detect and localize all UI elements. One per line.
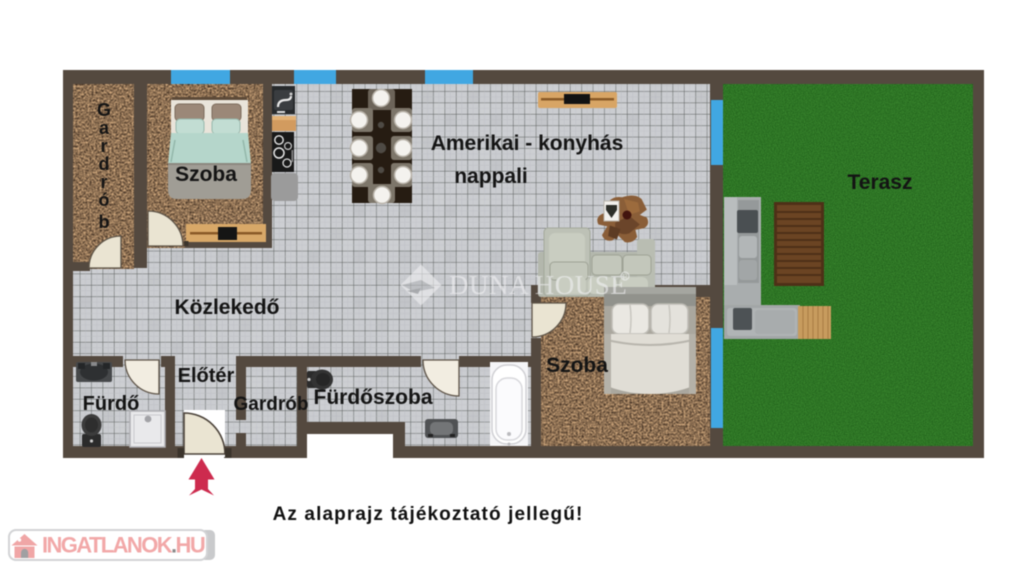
svg-text:a: a (99, 118, 110, 138)
svg-text:ó: ó (99, 190, 110, 210)
svg-text:Az alaprajz tájékoztató jelleg: Az alaprajz tájékoztató jellegű! (273, 504, 584, 525)
svg-text:Fürdőszoba: Fürdőszoba (314, 386, 433, 409)
svg-text:r: r (100, 136, 107, 156)
svg-text:nappali: nappali (454, 165, 528, 188)
svg-text:Közlekedő: Közlekedő (174, 296, 279, 319)
svg-text:Szoba: Szoba (175, 163, 237, 186)
svg-text:r: r (100, 172, 107, 192)
svg-text:Amerikai - konyhás: Amerikai - konyhás (431, 132, 624, 155)
svg-text:Szoba: Szoba (546, 354, 608, 377)
svg-text:Terasz: Terasz (848, 171, 913, 194)
svg-text:Fürdő: Fürdő (83, 393, 140, 415)
svg-text:Előtér: Előtér (178, 365, 235, 387)
svg-text:G: G (97, 100, 111, 120)
svg-text:DUNA HOUSE: DUNA HOUSE (449, 270, 627, 300)
svg-text:Gardrób: Gardrób (234, 394, 309, 415)
svg-text:R: R (623, 274, 628, 281)
svg-text:d: d (99, 154, 110, 174)
svg-text:INGATLANOK.HU: INGATLANOK.HU (42, 533, 205, 558)
svg-text:b: b (99, 212, 110, 232)
